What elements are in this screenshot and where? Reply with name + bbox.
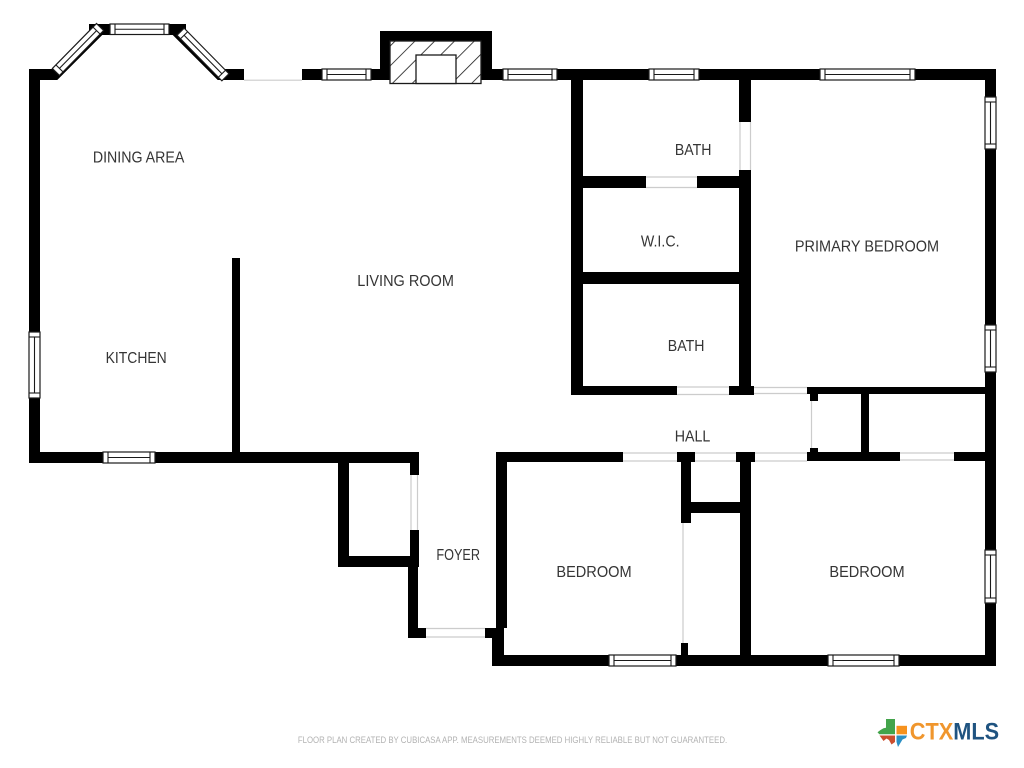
svg-text:KITCHEN: KITCHEN xyxy=(106,350,167,367)
svg-text:BATH: BATH xyxy=(668,338,705,355)
svg-text:FOYER: FOYER xyxy=(436,547,480,564)
svg-text:PRIMARY BEDROOM: PRIMARY BEDROOM xyxy=(795,238,939,255)
svg-text:HALL: HALL xyxy=(675,429,711,446)
svg-text:DINING AREA: DINING AREA xyxy=(93,150,185,167)
svg-text:BEDROOM: BEDROOM xyxy=(829,564,904,581)
svg-text:LIVING ROOM: LIVING ROOM xyxy=(357,273,454,290)
svg-text:FLOOR PLAN CREATED BY CUBICASA: FLOOR PLAN CREATED BY CUBICASA APP. MEAS… xyxy=(298,735,727,745)
svg-text:BEDROOM: BEDROOM xyxy=(556,564,631,581)
svg-text:CTXMLS: CTXMLS xyxy=(910,719,999,746)
svg-text:W.I.C.: W.I.C. xyxy=(641,234,680,251)
svg-text:BATH: BATH xyxy=(675,142,712,159)
